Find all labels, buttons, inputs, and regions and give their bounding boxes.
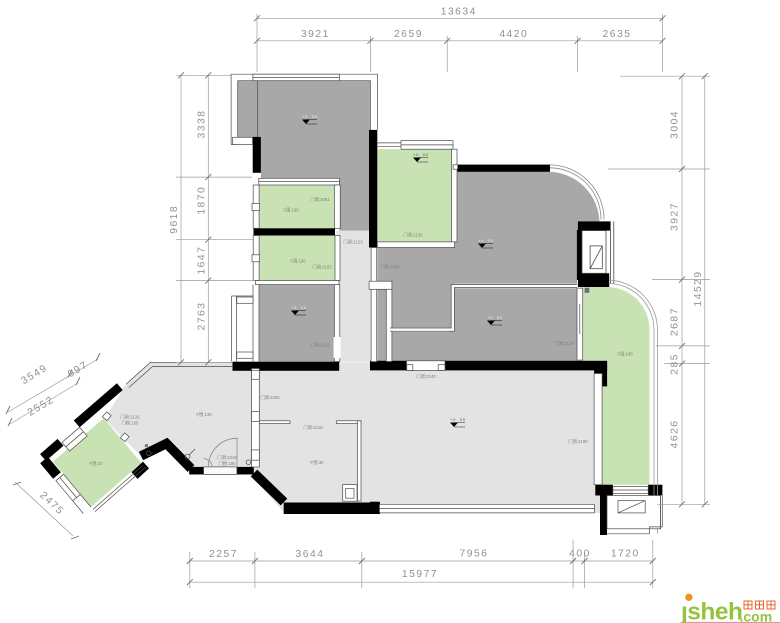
svg-text:门洞:2123: 门洞:2123 xyxy=(343,239,363,246)
svg-text:门洞:2100: 门洞:2100 xyxy=(568,438,588,445)
svg-text:3921: 3921 xyxy=(301,29,330,40)
svg-text:3644: 3644 xyxy=(296,549,325,560)
svg-text:2763: 2763 xyxy=(196,302,207,331)
svg-text:1870: 1870 xyxy=(196,186,207,215)
svg-text:1647: 1647 xyxy=(196,246,207,275)
svg-text:3927: 3927 xyxy=(670,202,681,231)
svg-text:.com: .com xyxy=(740,609,773,623)
svg-text:285: 285 xyxy=(670,353,681,375)
svg-text:门洞:2115: 门洞:2115 xyxy=(310,342,330,349)
svg-text:jsheh: jsheh xyxy=(680,599,743,623)
svg-text:9618: 9618 xyxy=(169,205,180,234)
svg-text:14529: 14529 xyxy=(693,270,704,306)
svg-text:4626: 4626 xyxy=(670,419,681,448)
svg-text:门洞:2120: 门洞:2120 xyxy=(554,340,574,347)
svg-text:400: 400 xyxy=(569,549,591,560)
svg-text:门洞:2126: 门洞:2126 xyxy=(120,414,140,421)
svg-text:13634: 13634 xyxy=(441,7,477,18)
svg-text:2257: 2257 xyxy=(209,549,238,560)
svg-text:2687: 2687 xyxy=(670,307,681,336)
svg-text:3004: 3004 xyxy=(670,110,681,139)
svg-text:15977: 15977 xyxy=(402,569,438,580)
svg-text:门洞:2140: 门洞:2140 xyxy=(416,373,436,380)
svg-text:门洞:2316: 门洞:2316 xyxy=(303,424,323,431)
svg-text:门洞:2035: 门洞:2035 xyxy=(380,264,400,271)
svg-text:门洞:2135: 门洞:2135 xyxy=(403,232,423,239)
svg-text:1720: 1720 xyxy=(611,549,640,560)
svg-text:门洞:2426: 门洞:2426 xyxy=(260,394,280,401)
svg-text:门洞:2102: 门洞:2102 xyxy=(312,264,332,271)
svg-text:2635: 2635 xyxy=(603,29,632,40)
svg-text:2659: 2659 xyxy=(394,29,423,40)
svg-text:4420: 4420 xyxy=(499,29,528,40)
svg-text:门洞:2318: 门洞:2318 xyxy=(217,454,237,461)
svg-text:7956: 7956 xyxy=(460,549,489,560)
svg-text:3338: 3338 xyxy=(196,110,207,139)
svg-text:门樘:190: 门樘:190 xyxy=(219,460,237,467)
svg-text:门樘:105: 门樘:105 xyxy=(122,420,140,427)
svg-text:门洞:2091: 门洞:2091 xyxy=(310,196,330,203)
